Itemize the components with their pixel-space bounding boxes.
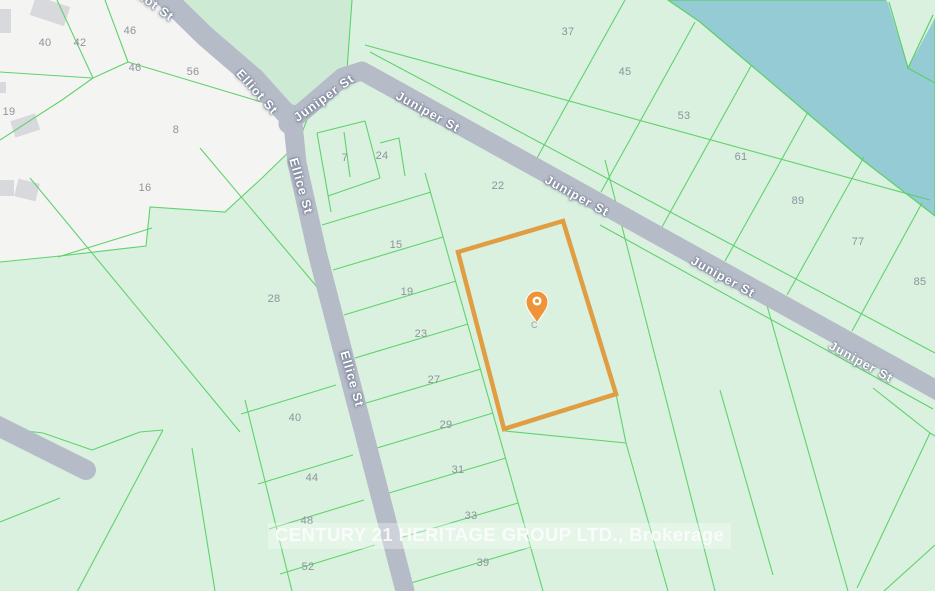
lot-number-52: 52 <box>302 561 315 573</box>
lot-number-28: 28 <box>268 293 281 305</box>
lot-number-61: 61 <box>735 151 748 163</box>
lot-number-56: 56 <box>187 66 200 78</box>
lot-number-46: 46 <box>129 62 142 74</box>
lot-number-7: 7 <box>342 152 348 164</box>
lot-number-15: 15 <box>390 239 403 251</box>
lot-number-19: 19 <box>401 286 414 298</box>
lot-number-85: 85 <box>914 276 927 288</box>
watermark-text: CENTURY 21 HERITAGE GROUP LTD., Brokerag… <box>275 524 724 545</box>
lot-number-27: 27 <box>428 374 441 386</box>
lot-number-53: 53 <box>678 110 691 122</box>
lot-number-33: 33 <box>465 510 478 522</box>
lot-number-40: 40 <box>39 37 52 49</box>
lot-number-31: 31 <box>452 464 465 476</box>
lot-number-45: 45 <box>619 66 632 78</box>
water-body <box>668 0 935 216</box>
pin-sub-glyph: C <box>531 320 538 330</box>
lot-number-46: 46 <box>124 25 137 37</box>
lot-number-29: 29 <box>440 419 453 431</box>
lot-number-22: 22 <box>492 180 505 192</box>
lot-number-44: 44 <box>306 472 319 484</box>
lot-number-89: 89 <box>792 195 805 207</box>
lot-number-77: 77 <box>852 236 865 248</box>
map-base-layer <box>0 0 935 591</box>
lot-number-37: 37 <box>562 26 575 38</box>
lot-number-39: 39 <box>477 557 490 569</box>
lot-number-19: 19 <box>3 106 16 118</box>
lot-number-24: 24 <box>376 150 389 162</box>
dead-end-road <box>0 424 86 470</box>
lot-number-40: 40 <box>289 412 302 424</box>
lot-number-42: 42 <box>74 37 87 49</box>
map-canvas[interactable]: 4042464656198162872422151923272931333937… <box>0 0 935 591</box>
lot-number-16: 16 <box>139 182 152 194</box>
property-pin[interactable] <box>526 291 548 323</box>
lot-number-8: 8 <box>173 124 179 136</box>
watermark: CENTURY 21 HERITAGE GROUP LTD., Brokerag… <box>268 523 731 549</box>
lot-number-23: 23 <box>415 328 428 340</box>
